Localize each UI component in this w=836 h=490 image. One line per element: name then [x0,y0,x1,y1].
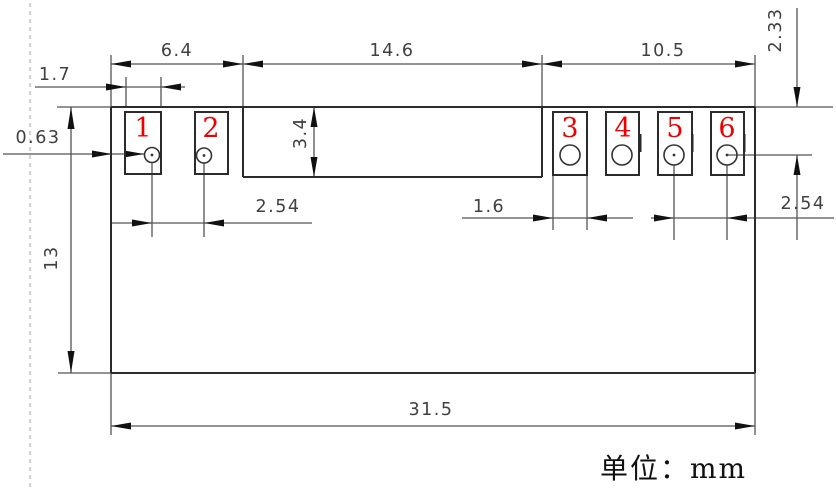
arrow-3.4-top [311,107,318,127]
hole-4 [612,145,632,165]
arrow-2.54L-left [132,220,152,227]
hole-2-center-mark [203,154,206,157]
arrow-31.5-right [735,423,755,430]
arrow-2.33-top [794,87,801,107]
hole-5-center-mark [673,154,676,157]
drawing-canvas: 1 2 3 4 5 6 6.4 14.6 10.5 1.7 0.63 2.33 … [0,0,836,490]
arrow-10.5-left [542,61,562,68]
arrow-2.54R-right [727,215,747,222]
pad-1-number: 1 [134,113,151,144]
arrow-10.5-right [735,61,755,68]
dim-label-body-height: 13 [42,245,62,270]
arrow-2.54L-right [204,220,224,227]
dim-label-pad1-width: 1.7 [39,65,71,85]
arrow-14.6-left [243,61,263,68]
arrow-13-top [68,107,75,129]
arrow-31.5-left [111,423,131,430]
dim-label-total-width: 31.5 [409,400,454,420]
arrow-1.7-right [161,84,181,91]
hole-6-center-mark [726,154,729,157]
arrow-3.4-bottom [311,157,318,177]
dim-label-edge-to-pad1: 0.63 [16,128,61,148]
pad-5-number: 5 [666,113,683,144]
dim-label-right-pitch: 2.54 [781,194,826,214]
arrow-1.7-left [106,84,126,91]
pad-4-number: 4 [614,113,631,144]
arrow-6.4-right [223,61,243,68]
dim-label-pad3-width: 1.6 [473,197,505,217]
arrow-2.54R-left [654,215,674,222]
pad-6-number: 6 [718,113,735,144]
arrow-14.6-right [522,61,542,68]
hole-3 [560,145,580,165]
pad-3-number: 3 [561,113,578,144]
dim-label-center-width: 14.6 [370,41,415,61]
pad-2-number: 2 [202,113,219,144]
arrowheads [68,61,801,430]
pad-numbers: 1 2 3 4 5 6 [134,113,735,144]
arrow-0.63-edge [92,151,112,158]
holes [145,145,738,165]
arrow-6.4-left [111,61,131,68]
dim-label-top-to-hole: 2.33 [766,8,786,53]
arrow-1.6-left [533,215,553,222]
dim-label-left-group-width: 6.4 [161,41,193,61]
dimension-lines [35,8,834,426]
dimension-labels: 6.4 14.6 10.5 1.7 0.63 2.33 3.4 13 2.54 … [16,8,826,420]
dim-label-left-pitch: 2.54 [256,197,301,217]
arrow-1.6-right [587,215,607,222]
arrow-2.33-bottom [794,155,801,175]
dim-label-center-height: 3.4 [291,117,311,149]
arrow-0.63-hole [124,151,144,158]
arrow-13-bottom [68,351,75,373]
hole-1-center-mark [151,154,154,157]
dimension-drawing: 1 2 3 4 5 6 6.4 14.6 10.5 1.7 0.63 2.33 … [0,0,836,490]
unit-label: 单位：mm [600,452,747,485]
dim-label-right-group-width: 10.5 [641,41,686,61]
